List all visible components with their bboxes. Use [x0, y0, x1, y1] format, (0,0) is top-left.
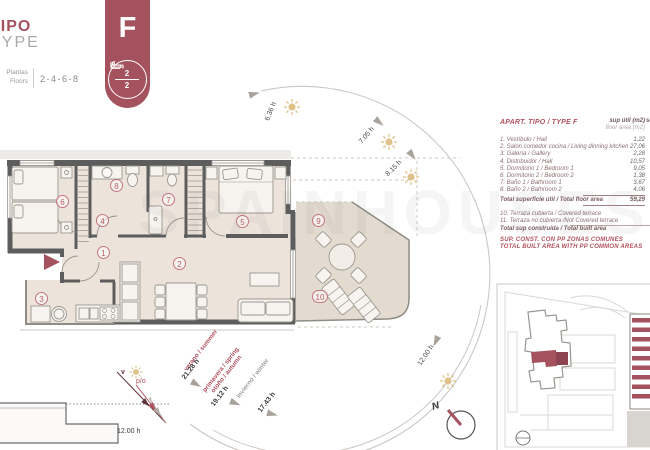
compass [447, 410, 475, 439]
table-row: 3. Galería / Gallery [500, 151, 550, 157]
ray-label-spring-autumn: p/o [136, 378, 146, 385]
table-row: 6. Dormitorio 2 / Bedroom 2 [500, 173, 574, 179]
site-plan [497, 284, 650, 450]
total-floor-value: 59,29 [585, 197, 645, 203]
table-footer-en: TOTAL BUILT AREA WITH PP COMMON AREAS [500, 244, 642, 250]
table-value: 1,38 [585, 173, 645, 179]
col-header-floor-area: floor area (m2) [585, 125, 645, 131]
room-badge-bathroom2: 8 [110, 179, 123, 192]
room-badge-hall: 4 [96, 214, 109, 227]
floorplan-page: { "header": {"tipo": "TIPO", "type": "TY… [0, 0, 650, 450]
table-row: 4. Distribuidor / Hall [500, 159, 552, 165]
room-badge-open-terrace: 10 [312, 290, 328, 303]
floors-label: Floors [10, 78, 28, 85]
floors-range: 2-4-6-8 [40, 74, 80, 84]
table-row: 5. Dormitorio 1 / Bedroom 1 [500, 166, 574, 172]
table-row: 7. Baño 1 / Bathroom 1 [500, 180, 562, 186]
table-value: 4,06 [585, 187, 645, 193]
baths-count: 2 [125, 82, 129, 90]
col-header-clipped: sup [646, 118, 650, 124]
ray-label-winter: i [150, 396, 152, 403]
table-value: 10,57 [585, 159, 645, 165]
table-value: 27,06 [585, 144, 645, 150]
col-header-sup-util: sup útil (m2) [585, 118, 645, 124]
table-row: 11. Terraza no cubierta /Not Covered ter… [500, 218, 618, 224]
room-badge-bedroom2: 6 [56, 195, 69, 208]
divider [583, 205, 645, 206]
total-built-row: Total sup construida / Total built area [500, 226, 606, 232]
ray-label-summer: v [121, 369, 125, 376]
room-badge-vestibule: 1 [97, 246, 110, 259]
table-footer-es: SUP. CONST. CON PP ZONAS COMUNES [500, 237, 623, 243]
table-row: 10. Terraza cubierta / Covered terrace [500, 211, 601, 217]
section-noon-label: 12.00 h [117, 428, 140, 435]
room-badge-covered-terrace: 9 [312, 214, 325, 227]
type-banner: F 2 2 [105, 0, 150, 108]
table-value: 2,28 [585, 151, 645, 157]
divider [33, 68, 34, 88]
divider [115, 79, 139, 80]
table-row: 1. Vestíbulo / Hall [500, 137, 547, 143]
room-badge-living: 2 [173, 257, 186, 270]
sun-icon [130, 366, 143, 379]
room-badge-bedroom1: 5 [236, 215, 249, 228]
table-value: 3,67 [585, 180, 645, 186]
bath-icon [109, 61, 123, 70]
plantas-label: Plantas [6, 69, 28, 76]
table-value: 9,05 [585, 166, 645, 172]
plantas-floors-label: Plantas Floors [0, 69, 28, 87]
table-row: 8. Baño 2 / Bathroom 2 [500, 187, 562, 193]
beds-baths-capsule: 2 2 [108, 60, 147, 99]
sun-icon [440, 373, 456, 389]
sun-icon [381, 134, 397, 150]
table-title: APART. TIPO / TYPE F [500, 119, 578, 126]
beds-count: 2 [125, 70, 129, 78]
highlighted-unit-2 [556, 352, 568, 365]
table-value: 1,22 [585, 137, 645, 143]
room-badge-gallery: 3 [35, 292, 48, 305]
room-badge-bathroom1: 7 [162, 193, 175, 206]
entrance-arrow-icon [44, 254, 60, 270]
type-letter: F [105, 12, 150, 45]
sun-icon [284, 99, 300, 115]
title-type: TYPE [0, 34, 40, 52]
